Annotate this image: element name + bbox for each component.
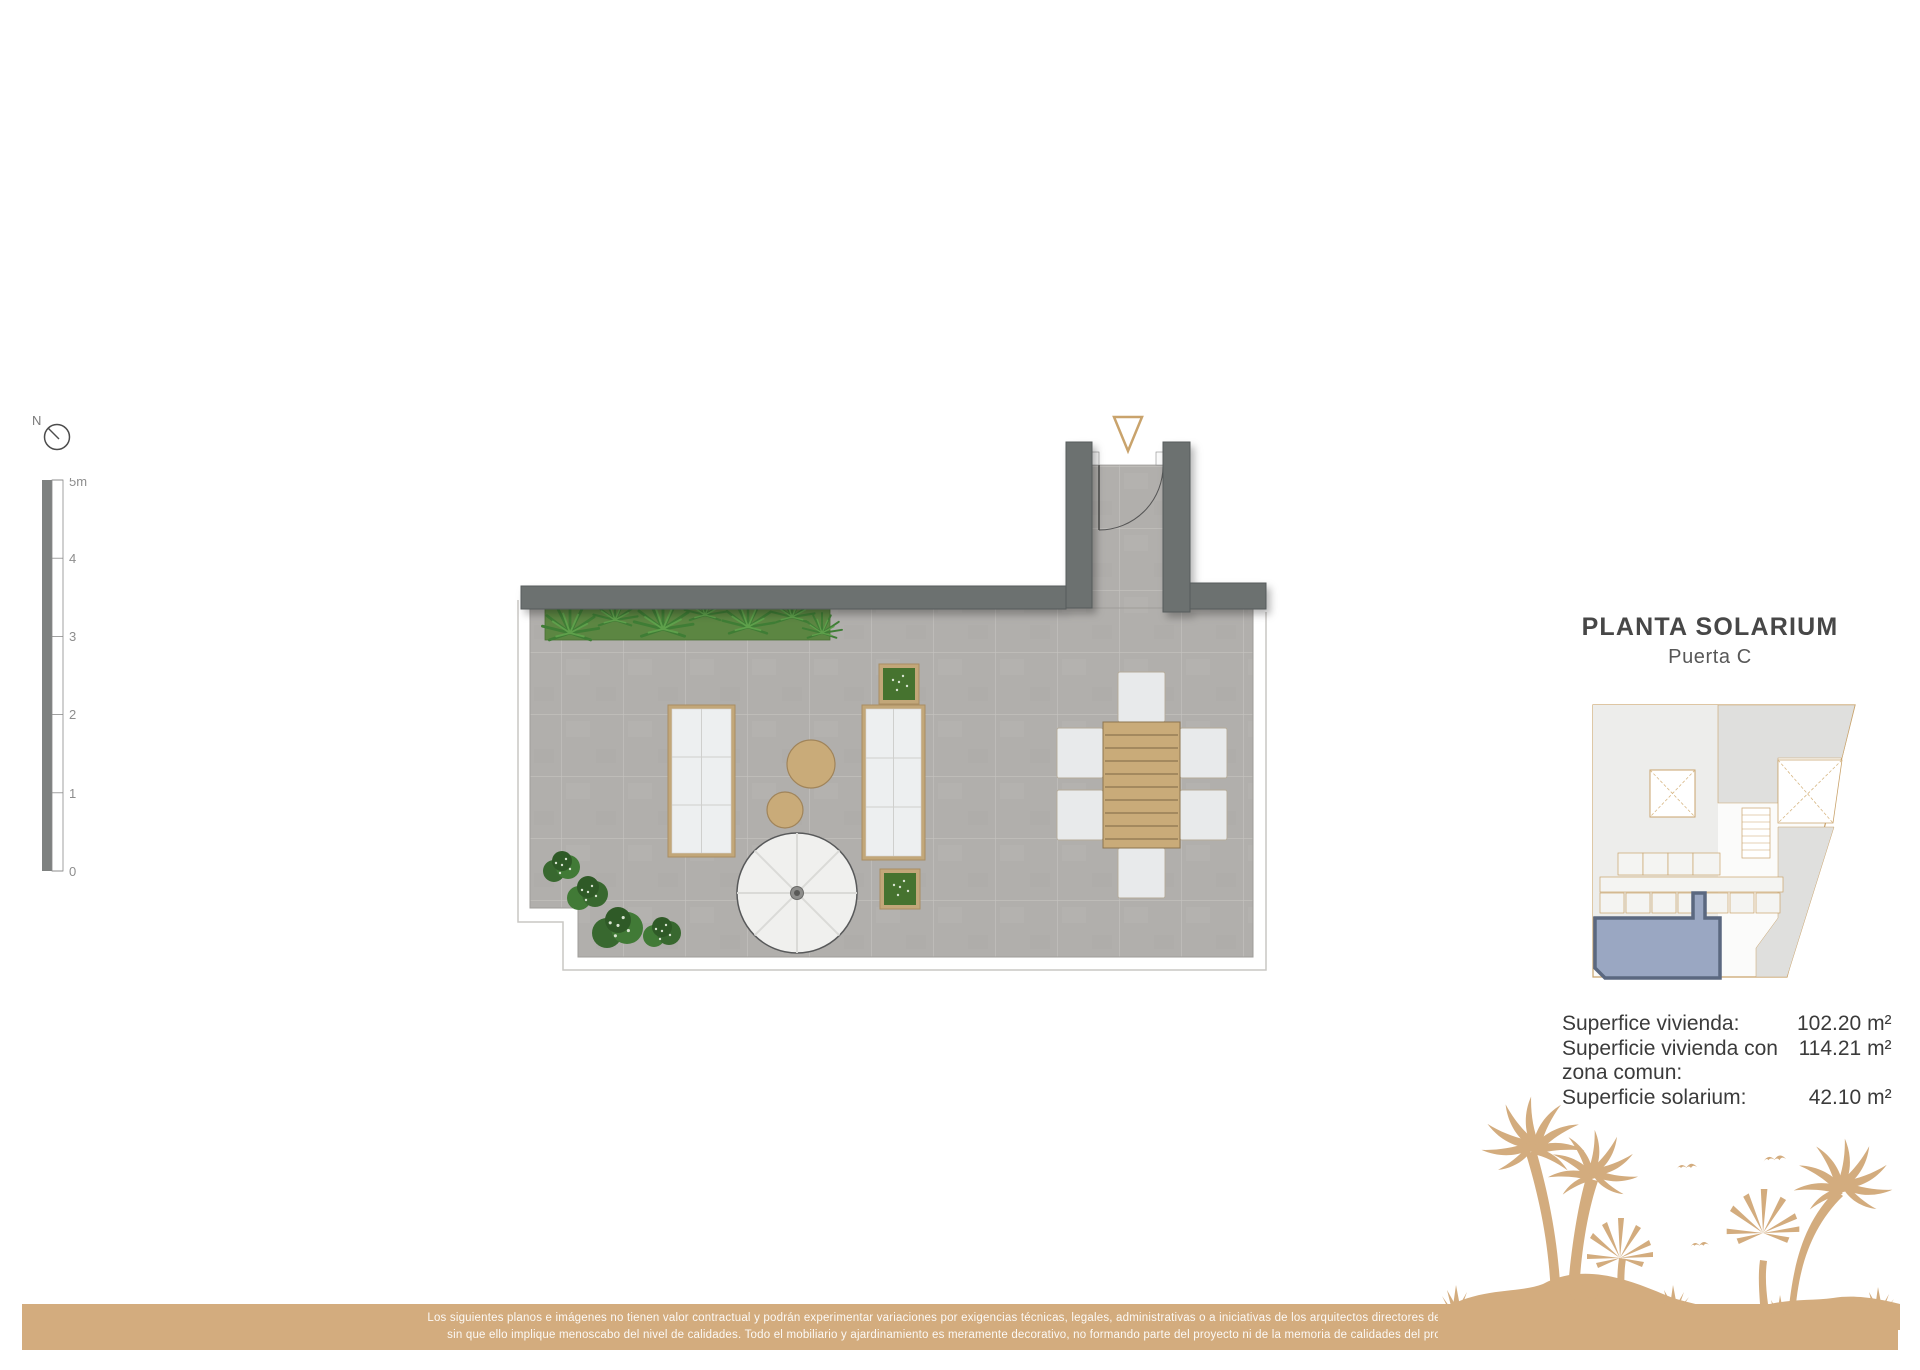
area-row-value: 102.20 m² — [1797, 1012, 1892, 1036]
area-row-label: Superfice vivienda: — [1562, 1012, 1797, 1036]
bird-icon — [1763, 1156, 1786, 1163]
tick-label-5m: 5m — [69, 478, 87, 489]
scale-bar: 5m 4 3 2 1 0 — [42, 478, 97, 880]
floor-plan — [500, 405, 1280, 990]
compass-needle — [49, 429, 60, 440]
tick-label-2: 2 — [69, 707, 76, 722]
palm-trees-illustration — [1438, 1088, 1900, 1352]
scale-bar-strip — [52, 480, 63, 871]
area-row-value: 114.21 m² — [1797, 1037, 1892, 1061]
sun-loungers-left — [668, 705, 735, 857]
plan-title: PLANTA SOLARIUM — [1560, 613, 1860, 642]
key-plan — [1590, 698, 1860, 998]
tick-label-1: 1 — [69, 786, 76, 801]
area-row-label: Superficie vivienda con zona comun: — [1562, 1037, 1797, 1085]
north-label: N — [32, 413, 41, 428]
page: { "header": { "title": "PLANTA SOLARIUM"… — [0, 0, 1920, 1370]
planter-box-bottom — [880, 869, 920, 909]
scale-bar-fill — [42, 480, 52, 871]
tick-label-3: 3 — [69, 629, 76, 644]
plan-subtitle: Puerta C — [1560, 646, 1860, 669]
entrance-corridor-floor — [1092, 465, 1163, 610]
planter-box-top — [879, 664, 919, 704]
parasol — [737, 833, 857, 953]
bird-icon — [1690, 1242, 1709, 1248]
sun-loungers-right — [862, 705, 925, 860]
palm-silhouette — [1438, 1096, 1900, 1350]
bird-icon — [1676, 1164, 1697, 1170]
dining-table — [1103, 722, 1180, 848]
tick-label-4: 4 — [69, 551, 76, 566]
key-plan-stairs — [1742, 808, 1770, 858]
entrance-marker-icon — [1114, 417, 1142, 451]
north-compass-icon: N — [24, 405, 84, 460]
tick-label-0: 0 — [69, 864, 76, 879]
